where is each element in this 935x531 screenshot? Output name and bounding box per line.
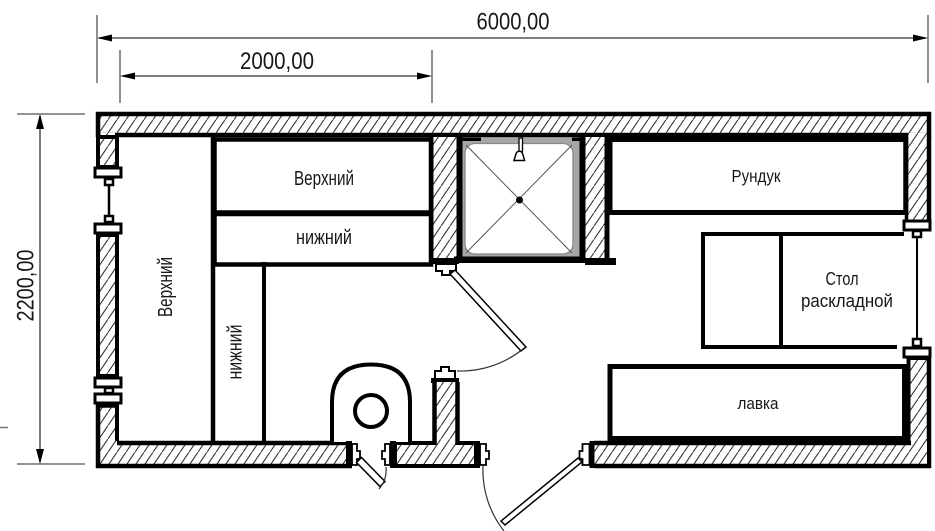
- svg-text:Верхний: Верхний: [294, 168, 354, 190]
- svg-text:6000,00: 6000,00: [477, 9, 550, 36]
- svg-text:Верхний: Верхний: [155, 257, 177, 317]
- svg-text:нижний: нижний: [225, 325, 247, 380]
- svg-text:лавка: лавка: [738, 394, 779, 413]
- svg-text:2200,00: 2200,00: [13, 250, 40, 322]
- svg-text:нижний: нижний: [296, 227, 352, 249]
- svg-text:2000,00: 2000,00: [240, 48, 314, 75]
- svg-text:Стол: Стол: [826, 268, 859, 289]
- svg-text:Рундук: Рундук: [732, 166, 781, 186]
- svg-text:раскладной: раскладной: [801, 290, 893, 311]
